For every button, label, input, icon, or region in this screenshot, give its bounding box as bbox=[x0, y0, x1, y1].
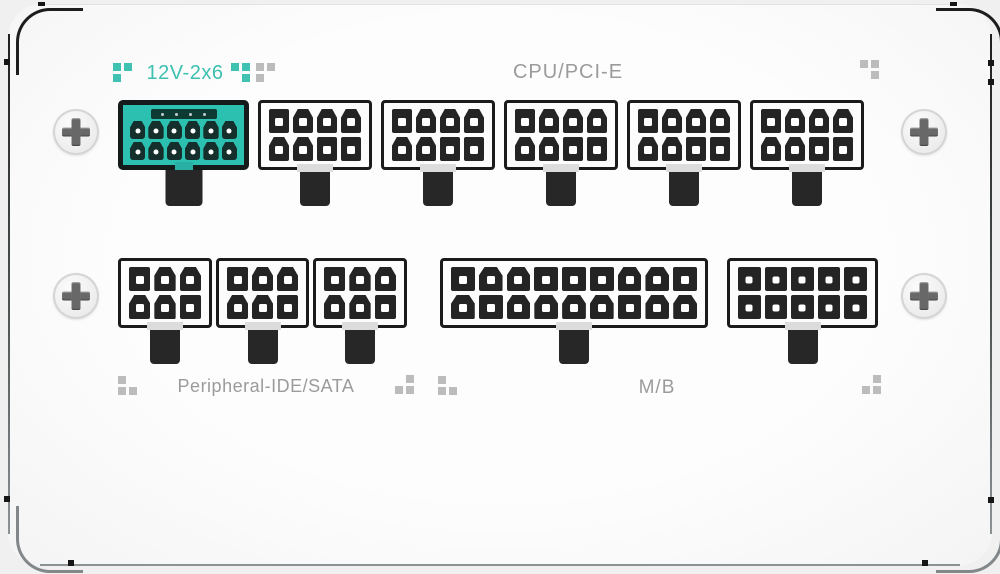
panel-edge-notch bbox=[4, 59, 10, 65]
connector-cpu-pcie-5 bbox=[750, 100, 864, 170]
pin-socket bbox=[148, 121, 163, 139]
label-cpu-pcie: CPU/PCI-E bbox=[490, 61, 646, 84]
pin-grid bbox=[738, 267, 867, 319]
pin-socket bbox=[167, 121, 182, 139]
pin-socket bbox=[440, 137, 460, 161]
connector-body bbox=[216, 258, 309, 328]
pin-socket bbox=[392, 109, 412, 133]
pin-socket bbox=[222, 142, 237, 160]
pin-socket bbox=[562, 267, 586, 291]
pin-socket bbox=[479, 267, 503, 291]
pin-socket bbox=[590, 295, 614, 319]
motif-cell bbox=[242, 63, 250, 71]
pin-grid bbox=[515, 109, 607, 161]
connector-peripheral-3 bbox=[313, 258, 407, 328]
pin-socket bbox=[507, 295, 531, 319]
motif-cell bbox=[129, 376, 137, 384]
motif-cell bbox=[449, 376, 457, 384]
pin-socket bbox=[222, 121, 237, 139]
panel-corner-top-left bbox=[16, 8, 83, 75]
panel-edge-notch bbox=[988, 497, 994, 503]
pin-grid bbox=[638, 109, 730, 161]
panel-edge-left bbox=[8, 34, 10, 534]
motif-cell bbox=[113, 63, 121, 71]
panel-edge-top bbox=[44, 4, 956, 5]
pin-socket bbox=[534, 267, 558, 291]
retention-tab bbox=[345, 328, 375, 364]
pin-socket bbox=[154, 267, 175, 291]
motif-cell bbox=[438, 376, 446, 384]
screw-cross-icon bbox=[72, 118, 81, 146]
pin-socket bbox=[416, 109, 436, 133]
pin-socket bbox=[180, 295, 201, 319]
latch-notch bbox=[297, 164, 333, 172]
label-12v-2x6: 12V-2x6 bbox=[135, 62, 235, 85]
motif-cell bbox=[860, 60, 868, 68]
pin-socket bbox=[129, 267, 150, 291]
retention-tab bbox=[788, 328, 818, 364]
connector-body bbox=[440, 258, 708, 328]
connector-body bbox=[118, 100, 249, 170]
retention-tab bbox=[669, 170, 699, 206]
latch-notch bbox=[420, 164, 456, 172]
panel-edge-notch bbox=[4, 496, 10, 502]
retention-tab bbox=[546, 170, 576, 206]
pin-socket bbox=[277, 267, 298, 291]
pin-socket bbox=[148, 142, 163, 160]
screw-top-left bbox=[53, 109, 99, 155]
retention-tab bbox=[792, 170, 822, 206]
pin-socket bbox=[252, 295, 273, 319]
panel-edge-notch bbox=[950, 2, 957, 6]
pin-grid bbox=[392, 109, 484, 161]
pin-socket bbox=[451, 295, 475, 319]
pixel-motif-icon bbox=[113, 63, 132, 82]
motif-cell bbox=[873, 375, 881, 383]
motif-cell bbox=[242, 74, 250, 82]
latch-notch bbox=[245, 322, 281, 330]
pin-socket bbox=[562, 295, 586, 319]
pin-socket bbox=[710, 109, 730, 133]
pin-socket bbox=[761, 137, 781, 161]
connector-body bbox=[750, 100, 864, 170]
pin-socket bbox=[349, 267, 370, 291]
screw-cross-icon bbox=[920, 118, 929, 146]
panel-edge-notch bbox=[988, 79, 994, 85]
screw-bottom-right bbox=[901, 273, 947, 319]
connector-body bbox=[118, 258, 212, 328]
pin-socket bbox=[791, 267, 814, 291]
pin-socket bbox=[375, 295, 396, 319]
motif-cell bbox=[113, 74, 121, 82]
motif-cell bbox=[118, 376, 126, 384]
latch-notch bbox=[785, 322, 821, 330]
pin-socket bbox=[129, 295, 150, 319]
pin-grid bbox=[324, 267, 396, 319]
retention-tab bbox=[150, 328, 180, 364]
connector-body bbox=[504, 100, 618, 170]
pin-socket bbox=[662, 137, 682, 161]
pin-socket bbox=[324, 267, 345, 291]
pin-socket bbox=[539, 137, 559, 161]
retention-tab bbox=[248, 328, 278, 364]
panel-edge-notch bbox=[988, 60, 994, 66]
motif-cell bbox=[862, 386, 870, 394]
pin-socket bbox=[645, 295, 669, 319]
pin-grid bbox=[451, 267, 697, 319]
pin-socket bbox=[180, 267, 201, 291]
pin-socket bbox=[451, 267, 475, 291]
motif-cell bbox=[118, 387, 126, 395]
connector-cpu-pcie-3 bbox=[504, 100, 618, 170]
pin-grid bbox=[269, 109, 361, 161]
connector-body bbox=[627, 100, 741, 170]
pin-socket bbox=[587, 109, 607, 133]
label-peripheral-ide-sata: Peripheral-IDE/SATA bbox=[156, 376, 376, 397]
connector-body bbox=[727, 258, 878, 328]
screw-cross-icon bbox=[72, 282, 81, 310]
screw-top-right bbox=[901, 109, 947, 155]
pin-socket bbox=[167, 142, 182, 160]
motif-cell bbox=[267, 74, 275, 82]
pin-socket bbox=[464, 109, 484, 133]
latch-notch bbox=[342, 322, 378, 330]
panel-edge-bottom bbox=[40, 564, 960, 566]
pin-grid bbox=[130, 121, 237, 160]
pin-socket bbox=[809, 137, 829, 161]
screw-cross-icon bbox=[920, 282, 929, 310]
pin-socket bbox=[765, 267, 788, 291]
pin-socket bbox=[686, 109, 706, 133]
motif-cell bbox=[862, 375, 870, 383]
screw-bottom-left bbox=[53, 273, 99, 319]
pin-socket bbox=[349, 295, 370, 319]
motif-cell bbox=[406, 386, 414, 394]
connector-peripheral-1 bbox=[118, 258, 212, 328]
pin-socket bbox=[765, 295, 788, 319]
motif-cell bbox=[871, 71, 879, 79]
pin-socket bbox=[341, 137, 361, 161]
pin-socket bbox=[563, 109, 583, 133]
motif-cell bbox=[438, 387, 446, 395]
latch-notch bbox=[175, 162, 193, 170]
pixel-motif-icon bbox=[256, 63, 275, 82]
pin-socket bbox=[844, 267, 867, 291]
pin-socket bbox=[293, 137, 313, 161]
pin-socket bbox=[154, 295, 175, 319]
pin-socket bbox=[833, 137, 853, 161]
motif-cell bbox=[873, 386, 881, 394]
connector-12v-2x6 bbox=[118, 100, 249, 170]
pin-socket bbox=[738, 295, 761, 319]
pin-socket bbox=[673, 295, 697, 319]
connector-body bbox=[258, 100, 372, 170]
motif-cell bbox=[449, 387, 457, 395]
motif-cell bbox=[406, 375, 414, 383]
retention-tab bbox=[165, 170, 202, 206]
latch-notch bbox=[556, 322, 592, 330]
pin-socket bbox=[638, 109, 658, 133]
panel-edge-notch bbox=[922, 560, 928, 566]
pin-socket bbox=[515, 109, 535, 133]
sense-pin-strip bbox=[151, 109, 217, 119]
connector-motherboard bbox=[440, 258, 708, 328]
pin-socket bbox=[440, 109, 460, 133]
pin-socket bbox=[227, 267, 248, 291]
connector-cpu-pcie-2 bbox=[381, 100, 495, 170]
retention-tab bbox=[559, 328, 589, 364]
motif-cell bbox=[231, 74, 239, 82]
connector-body bbox=[381, 100, 495, 170]
pin-socket bbox=[645, 267, 669, 291]
motif-cell bbox=[395, 386, 403, 394]
pin-socket bbox=[818, 267, 841, 291]
pin-socket bbox=[563, 137, 583, 161]
pin-socket bbox=[673, 267, 697, 291]
pin-socket bbox=[539, 109, 559, 133]
pin-socket bbox=[269, 109, 289, 133]
pixel-motif-icon bbox=[231, 63, 250, 82]
pixel-motif-icon bbox=[862, 375, 881, 394]
pin-socket bbox=[515, 137, 535, 161]
pin-socket bbox=[785, 137, 805, 161]
pin-socket bbox=[317, 109, 337, 133]
latch-notch bbox=[147, 322, 183, 330]
pin-socket bbox=[587, 137, 607, 161]
motif-cell bbox=[256, 63, 264, 71]
motif-cell bbox=[395, 375, 403, 383]
pin-socket bbox=[738, 267, 761, 291]
pin-socket bbox=[185, 121, 200, 139]
motif-cell bbox=[256, 74, 264, 82]
connector-cpu-pcie-1 bbox=[258, 100, 372, 170]
pin-socket bbox=[185, 142, 200, 160]
pin-socket bbox=[277, 295, 298, 319]
pin-socket bbox=[227, 295, 248, 319]
motif-cell bbox=[124, 63, 132, 71]
pin-socket bbox=[618, 295, 642, 319]
connector-cpu-pcie-4 bbox=[627, 100, 741, 170]
pixel-motif-icon bbox=[118, 376, 137, 395]
panel-edge-notch bbox=[38, 2, 45, 6]
label-motherboard: M/B bbox=[612, 377, 702, 399]
pin-socket bbox=[479, 295, 503, 319]
panel-edge-notch bbox=[68, 560, 74, 566]
retention-tab bbox=[423, 170, 453, 206]
latch-notch bbox=[543, 164, 579, 172]
pin-socket bbox=[203, 121, 218, 139]
connector-body bbox=[313, 258, 407, 328]
motif-cell bbox=[871, 60, 879, 68]
pin-grid bbox=[129, 267, 201, 319]
pin-socket bbox=[203, 142, 218, 160]
pin-socket bbox=[416, 137, 436, 161]
pin-socket bbox=[324, 295, 345, 319]
pin-socket bbox=[662, 109, 682, 133]
pin-socket bbox=[130, 121, 145, 139]
pin-socket bbox=[785, 109, 805, 133]
pin-socket bbox=[534, 295, 558, 319]
motif-cell bbox=[267, 63, 275, 71]
pin-socket bbox=[638, 137, 658, 161]
psu-rear-panel-photo: 12V-2x6 CPU/PCI-E Peripheral-IDE/SATA M/… bbox=[0, 0, 1000, 574]
pin-socket bbox=[761, 109, 781, 133]
pin-socket bbox=[293, 109, 313, 133]
connector-10pin bbox=[727, 258, 878, 328]
pin-socket bbox=[791, 295, 814, 319]
latch-notch bbox=[789, 164, 825, 172]
pixel-motif-icon bbox=[438, 376, 457, 395]
retention-tab bbox=[300, 170, 330, 206]
pin-socket bbox=[818, 295, 841, 319]
pixel-motif-icon bbox=[395, 375, 414, 394]
pin-socket bbox=[269, 137, 289, 161]
panel-edge-right bbox=[990, 34, 992, 534]
pin-socket bbox=[341, 109, 361, 133]
pin-grid bbox=[227, 267, 298, 319]
pin-socket bbox=[833, 109, 853, 133]
connector-peripheral-2 bbox=[216, 258, 309, 328]
pin-socket bbox=[507, 267, 531, 291]
latch-notch bbox=[666, 164, 702, 172]
motif-cell bbox=[860, 71, 868, 79]
pixel-motif-icon bbox=[860, 60, 879, 79]
pin-socket bbox=[590, 267, 614, 291]
motif-cell bbox=[231, 63, 239, 71]
pin-socket bbox=[686, 137, 706, 161]
pin-socket bbox=[618, 267, 642, 291]
pin-socket bbox=[809, 109, 829, 133]
pin-socket bbox=[844, 295, 867, 319]
pin-socket bbox=[252, 267, 273, 291]
pin-socket bbox=[130, 142, 145, 160]
motif-cell bbox=[124, 74, 132, 82]
motif-cell bbox=[129, 387, 137, 395]
pin-socket bbox=[464, 137, 484, 161]
pin-socket bbox=[392, 137, 412, 161]
pin-grid bbox=[761, 109, 853, 161]
pin-socket bbox=[710, 137, 730, 161]
pin-socket bbox=[317, 137, 337, 161]
pin-socket bbox=[375, 267, 396, 291]
